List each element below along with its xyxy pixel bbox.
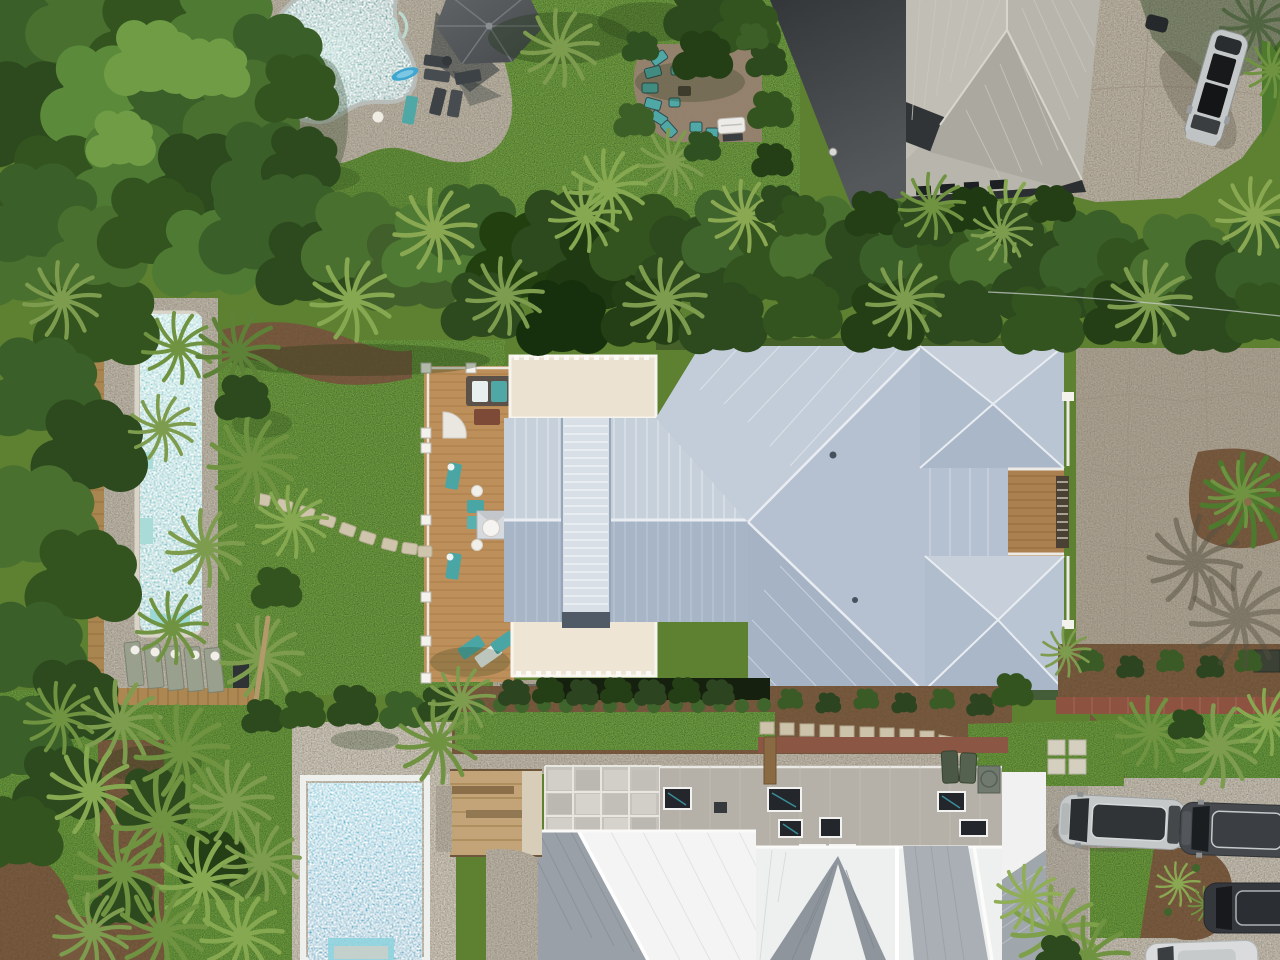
porch-stairs: [1056, 476, 1069, 548]
teal-daybed: [466, 376, 514, 406]
gravel-pocket: [486, 849, 538, 960]
cream-roof-north: [510, 356, 656, 418]
boardwalk: [100, 688, 254, 705]
roof-monitor: [562, 418, 610, 622]
roof-hatch: [714, 802, 727, 813]
rect-pool: [308, 783, 422, 960]
wood-post: [764, 737, 776, 784]
aerial-photo-canvas: [0, 0, 1280, 960]
suv-charcoal-bottom: [1204, 883, 1280, 933]
wood-ramp: [436, 770, 542, 856]
white-stool: [472, 486, 483, 497]
brick-band-west: [758, 737, 1008, 753]
monitor-base: [562, 612, 610, 628]
roof-vent: [829, 148, 837, 156]
roof-porch-recess: [1008, 468, 1069, 556]
roof-pyramid-ne: [920, 346, 1064, 468]
aerial-photo: [0, 0, 1280, 960]
car-white-bottom: [1145, 940, 1258, 960]
panel-grid-roof: [545, 766, 661, 836]
cream-roof-south: [512, 620, 656, 676]
suv-dark-bottom: [1179, 799, 1280, 861]
suv-silver-bottom: [1058, 791, 1187, 854]
outdoor-rug: [474, 409, 500, 425]
side-table: [373, 112, 384, 123]
roof-vent: [830, 452, 837, 459]
roof-pyramid-se: [925, 556, 1064, 690]
